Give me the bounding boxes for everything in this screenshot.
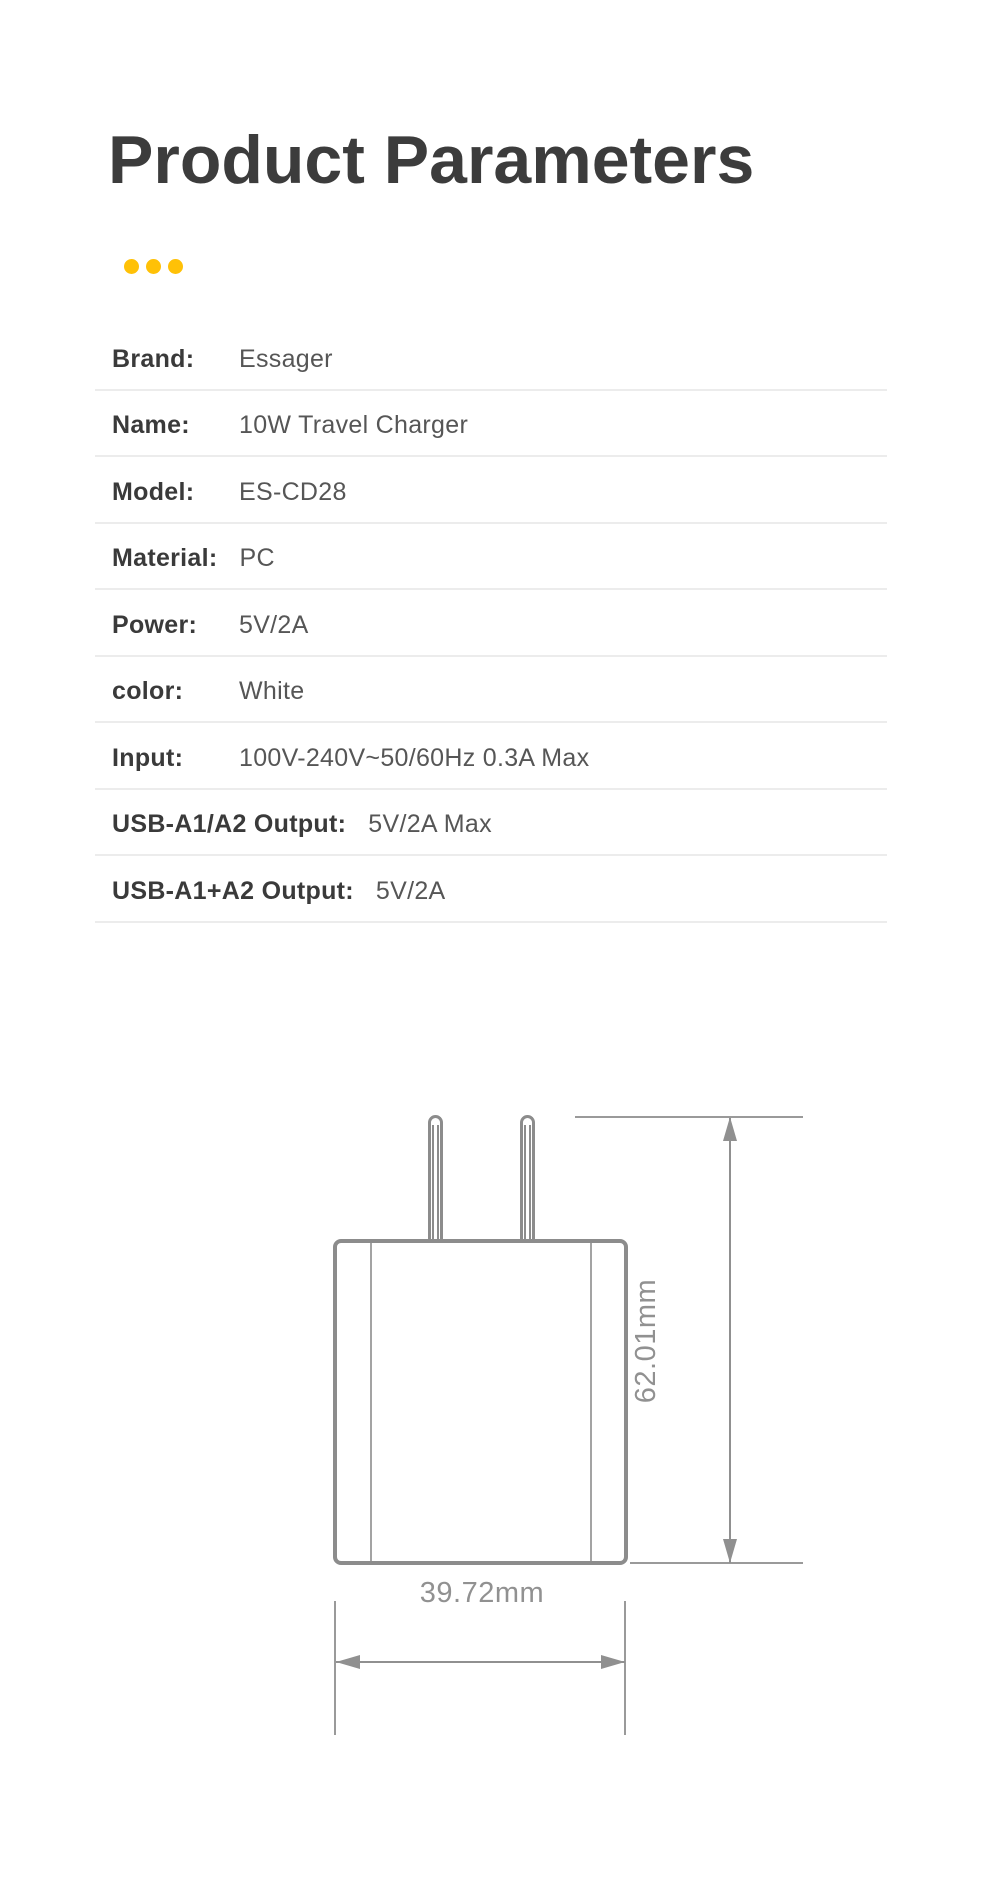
spec-value: White [239, 677, 304, 706]
spec-row-material: Material: PC [95, 524, 887, 591]
prong-highlight-line [529, 1125, 531, 1243]
spec-value: 100V-240V~50/60Hz 0.3A Max [239, 744, 589, 773]
charger-body-outline [333, 1239, 628, 1565]
width-dimension-label: 39.72mm [387, 1577, 577, 1610]
spec-value: 5V/2A [376, 877, 446, 906]
height-dimension-line [729, 1118, 731, 1563]
spec-row-model: Model: ES-CD28 [95, 457, 887, 524]
up-arrowhead-icon [723, 1117, 737, 1141]
left-arrowhead-icon [336, 1655, 360, 1669]
spec-value: 5V/2A Max [368, 810, 492, 839]
accent-dot [168, 259, 183, 274]
spec-row-power: Power: 5V/2A [95, 590, 887, 657]
plug-prong-right [520, 1115, 535, 1243]
spec-label: USB-A1+A2 Output: [112, 877, 376, 906]
charger-body-edge-line-right [590, 1243, 592, 1561]
down-arrowhead-icon [723, 1539, 737, 1563]
spec-value: PC [240, 544, 275, 573]
spec-label: Brand: [112, 345, 239, 374]
spec-value: Essager [239, 345, 333, 374]
spec-row-color: color: White [95, 657, 887, 724]
spec-row-usb-a1-a2-output: USB-A1/A2 Output: 5V/2A Max [95, 790, 887, 857]
height-extension-line-bottom [630, 1562, 803, 1564]
charger-body-edge-line-left [370, 1243, 372, 1561]
right-arrowhead-icon [601, 1655, 625, 1669]
height-dimension-label: 62.01mm [631, 1256, 661, 1426]
height-extension-line-top [575, 1116, 803, 1118]
spec-row-brand: Brand: Essager [95, 324, 887, 391]
accent-dot [146, 259, 161, 274]
spec-table: Brand: Essager Name: 10W Travel Charger … [95, 324, 887, 923]
spec-label: Name: [112, 411, 239, 440]
prong-highlight-line [524, 1125, 526, 1243]
plug-prong-left [428, 1115, 443, 1243]
prong-highlight-line [432, 1125, 434, 1243]
spec-label: color: [112, 677, 239, 706]
spec-label: Model: [112, 478, 239, 507]
spec-label: USB-A1/A2 Output: [112, 810, 368, 839]
spec-value: 10W Travel Charger [239, 411, 468, 440]
spec-label: Input: [112, 744, 239, 773]
spec-row-usb-a1-plus-a2-output: USB-A1+A2 Output: 5V/2A [95, 856, 887, 923]
spec-row-input: Input: 100V-240V~50/60Hz 0.3A Max [95, 723, 887, 790]
accent-dots [124, 259, 183, 274]
spec-value: 5V/2A [239, 611, 309, 640]
prong-highlight-line [437, 1125, 439, 1243]
spec-label: Power: [112, 611, 239, 640]
product-parameters-page: Product Parameters Brand: Essager Name: … [0, 0, 1000, 1900]
width-dimension-line [336, 1661, 625, 1663]
spec-value: ES-CD28 [239, 478, 347, 507]
page-title: Product Parameters [108, 126, 754, 194]
spec-label: Material: [112, 544, 240, 573]
accent-dot [124, 259, 139, 274]
spec-row-name: Name: 10W Travel Charger [95, 391, 887, 458]
